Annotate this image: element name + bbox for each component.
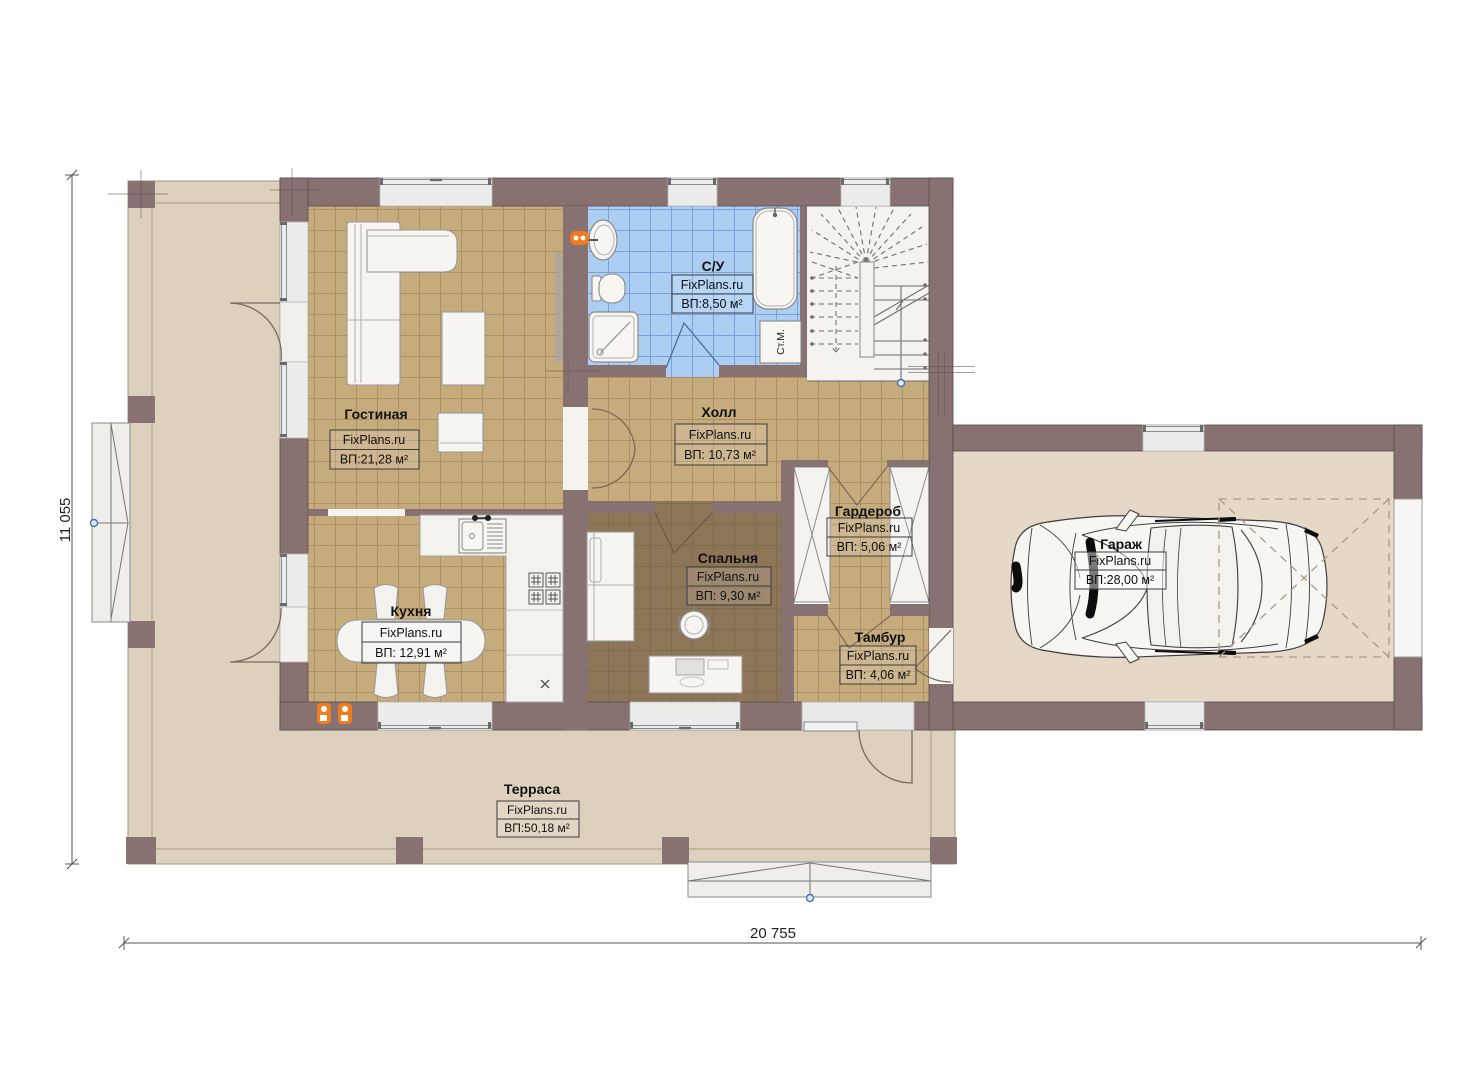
svg-text:FixPlans.ru: FixPlans.ru bbox=[689, 428, 752, 442]
svg-text:ВП:28,00 м²: ВП:28,00 м² bbox=[1086, 573, 1154, 587]
svg-text:Тамбур: Тамбур bbox=[855, 629, 906, 645]
svg-text:Кухня: Кухня bbox=[391, 603, 432, 619]
svg-text:FixPlans.ru: FixPlans.ru bbox=[343, 433, 406, 447]
svg-text:20 755: 20 755 bbox=[750, 925, 796, 942]
svg-text:ВП: 4,06 м²: ВП: 4,06 м² bbox=[846, 668, 911, 682]
svg-text:FixPlans.ru: FixPlans.ru bbox=[681, 278, 744, 292]
svg-text:11 055: 11 055 bbox=[57, 498, 74, 543]
svg-text:Спальня: Спальня bbox=[698, 550, 758, 566]
svg-text:ВП:21,28 м²: ВП:21,28 м² bbox=[340, 453, 408, 467]
svg-text:ВП:8,50 м²: ВП:8,50 м² bbox=[681, 297, 742, 311]
svg-text:FixPlans.ru: FixPlans.ru bbox=[847, 649, 910, 663]
svg-text:Гардероб: Гардероб bbox=[835, 503, 902, 519]
svg-text:FixPlans.ru: FixPlans.ru bbox=[507, 803, 567, 817]
svg-text:Гостиная: Гостиная bbox=[344, 406, 407, 422]
svg-text:ВП: 5,06 м²: ВП: 5,06 м² bbox=[837, 540, 902, 554]
svg-text:FixPlans.ru: FixPlans.ru bbox=[380, 626, 443, 640]
svg-text:С/У: С/У bbox=[702, 258, 725, 274]
svg-text:FixPlans.ru: FixPlans.ru bbox=[697, 570, 760, 584]
svg-text:ВП: 12,91 м²: ВП: 12,91 м² bbox=[375, 646, 447, 660]
svg-text:Терраса: Терраса bbox=[504, 781, 560, 797]
svg-text:ВП: 9,30 м²: ВП: 9,30 м² bbox=[696, 589, 761, 603]
svg-text:ВП: 10,73 м²: ВП: 10,73 м² bbox=[684, 448, 756, 462]
svg-text:ВП:50,18 м²: ВП:50,18 м² bbox=[504, 821, 570, 835]
svg-text:Холл: Холл bbox=[701, 404, 736, 420]
svg-text:FixPlans.ru: FixPlans.ru bbox=[1089, 554, 1152, 568]
svg-text:Гараж: Гараж bbox=[1100, 536, 1143, 552]
svg-text:Ст.М.: Ст.М. bbox=[775, 329, 787, 355]
svg-text:FixPlans.ru: FixPlans.ru bbox=[838, 521, 901, 535]
